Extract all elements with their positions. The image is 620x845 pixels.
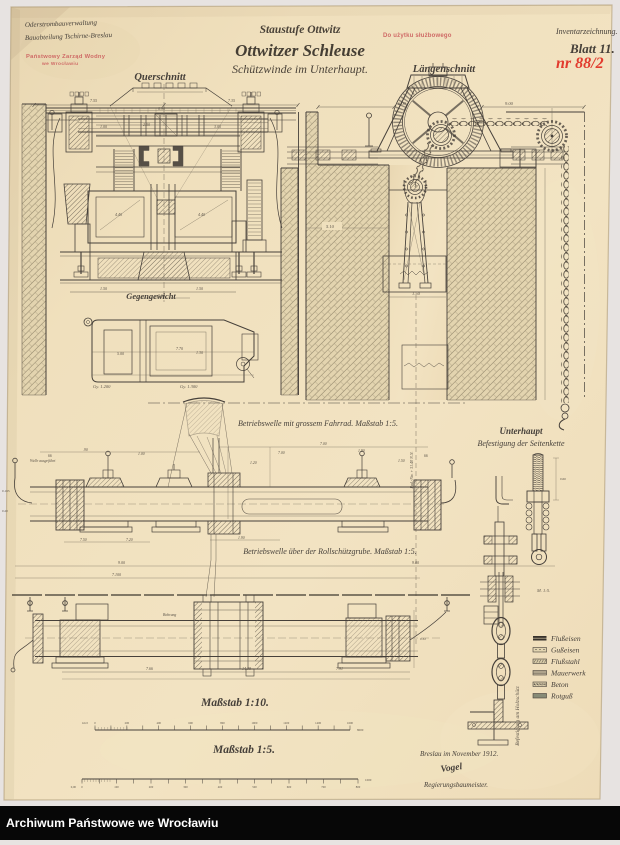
svg-text:Gegengewicht: Gegengewicht [126,291,176,301]
svg-text:1m 0: 1m 0 [82,721,89,725]
svg-text:7.00: 7.00 [320,442,327,446]
svg-text:1.20: 1.20 [250,461,257,465]
svg-text:1.90: 1.90 [358,449,365,453]
svg-text:14.38: 14.38 [242,666,251,671]
svg-text:7.100: 7.100 [112,572,121,577]
svg-text:5.00: 5.00 [117,351,124,356]
svg-text:Betriebswelle mit grossem Fahr: Betriebswelle mit grossem Fahrrad. Maßst… [238,419,398,428]
svg-text:Beton: Beton [551,680,569,689]
svg-text:Rad.-Niv. + 31.40 N.N.: Rad.-Niv. + 31.40 N.N. [409,451,414,489]
svg-text:Flußeisen: Flußeisen [550,634,581,643]
svg-text:Państwowy Zarząd Wodny: Państwowy Zarząd Wodny [26,54,106,60]
svg-text:we Wrocławiu: we Wrocławiu [41,61,78,67]
svg-text:400: 400 [218,785,223,789]
svg-text:Archiwum Państwowe we Wrocławi: Archiwum Państwowe we Wrocławiu [6,816,218,830]
svg-text:1200: 1200 [283,721,290,725]
svg-text:Ottwitzer Schleuse: Ottwitzer Schleuse [235,41,365,60]
svg-text:7.35: 7.35 [228,98,235,103]
svg-text:200: 200 [149,785,154,789]
svg-text:Schützwinde im Unterhaupt.: Schützwinde im Unterhaupt. [232,62,368,76]
svg-text:Mauerwerk: Mauerwerk [550,669,586,678]
svg-text:8000: 8000 [357,728,364,732]
svg-text:200: 200 [125,721,130,725]
svg-text:Blatt 11.: Blatt 11. [569,41,615,56]
svg-text:nr 88/2: nr 88/2 [556,55,604,72]
svg-text:1600: 1600 [347,721,354,725]
svg-text:1.50: 1.50 [412,291,421,296]
svg-text:1000: 1000 [251,721,258,725]
svg-text:600: 600 [287,785,292,789]
svg-text:1400: 1400 [315,721,322,725]
svg-text:Unterhaupt: Unterhaupt [499,426,543,436]
svg-text:1.00: 1.00 [138,452,145,456]
svg-text:Querschnitt: Querschnitt [134,72,186,83]
svg-text:Gußeisen: Gußeisen [551,646,580,655]
svg-text:Befestigung der Seitenkette: Befestigung der Seitenkette [477,439,565,448]
svg-text:9.00: 9.00 [505,101,514,106]
svg-text:7.55: 7.55 [90,98,97,103]
svg-text:800: 800 [220,721,225,725]
svg-text:800: 800 [356,785,361,789]
svg-text:1.90: 1.90 [238,536,245,540]
svg-text:66: 66 [424,454,428,458]
svg-text:300: 300 [183,785,188,789]
svg-text:2.00: 2.00 [143,122,150,127]
svg-text:Befestigung am Holzschütz: Befestigung am Holzschütz [514,685,521,745]
svg-text:Inventarzeichnung.: Inventarzeichnung. [555,27,618,36]
svg-text:1.50: 1.50 [196,286,203,291]
svg-text:Gy. 1.300: Gy. 1.300 [180,384,198,389]
svg-text:1000: 1000 [365,778,372,782]
svg-text:0.20: 0.20 [2,509,8,513]
svg-text:Maßstab 1:5.: Maßstab 1:5. [212,744,275,756]
svg-text:400: 400 [157,721,162,725]
svg-text:M. 1:5.: M. 1:5. [536,588,550,593]
svg-text:Bohrung: Bohrung [163,613,176,617]
svg-text:700: 700 [321,785,326,789]
svg-text:9.00: 9.00 [412,560,419,565]
svg-text:1.50: 1.50 [398,459,405,463]
svg-text:Längenschnitt: Längenschnitt [412,64,477,75]
svg-text:Betriebswelle über der Rollsch: Betriebswelle über der Rollschützgrube. … [243,547,417,556]
svg-text:0.60: 0.60 [560,477,566,481]
svg-text:66: 66 [48,454,52,458]
svg-text:600: 600 [188,721,193,725]
svg-text:0.32: 0.32 [420,637,426,641]
svg-text:Staustufe Ottwitz: Staustufe Ottwitz [260,24,341,36]
svg-text:7.70: 7.70 [176,346,183,351]
svg-text:7.66: 7.66 [146,666,153,671]
svg-text:Maßstab 1:10.: Maßstab 1:10. [200,697,269,709]
svg-text:Do użytku służbowego: Do użytku służbowego [383,33,452,39]
svg-text:7.20: 7.20 [126,538,133,542]
svg-text:Flußstahl: Flußstahl [550,657,580,666]
svg-text:9.00: 9.00 [118,560,125,565]
svg-text:5.10: 5.10 [326,224,335,229]
svg-text:Gy. 1.200: Gy. 1.200 [93,384,111,389]
svg-text:500: 500 [252,785,257,789]
svg-text:Regierungsbaumeister.: Regierungsbaumeister. [423,781,488,789]
svg-text:7.91: 7.91 [336,666,343,671]
svg-text:.90: .90 [83,448,88,452]
svg-text:1.30: 1.30 [196,350,203,355]
svg-text:Welle ausgeführt: Welle ausgeführt [30,459,56,463]
svg-text:1.50: 1.50 [100,286,107,291]
svg-text:4.40: 4.40 [198,212,205,217]
svg-text:Rotguß: Rotguß [550,692,573,701]
svg-text:100: 100 [114,785,119,789]
svg-text:7.00: 7.00 [278,451,285,455]
svg-text:Breslau im November 1912.: Breslau im November 1912. [420,750,499,758]
svg-text:0.165: 0.165 [2,489,10,493]
svg-text:7.50: 7.50 [80,538,87,542]
